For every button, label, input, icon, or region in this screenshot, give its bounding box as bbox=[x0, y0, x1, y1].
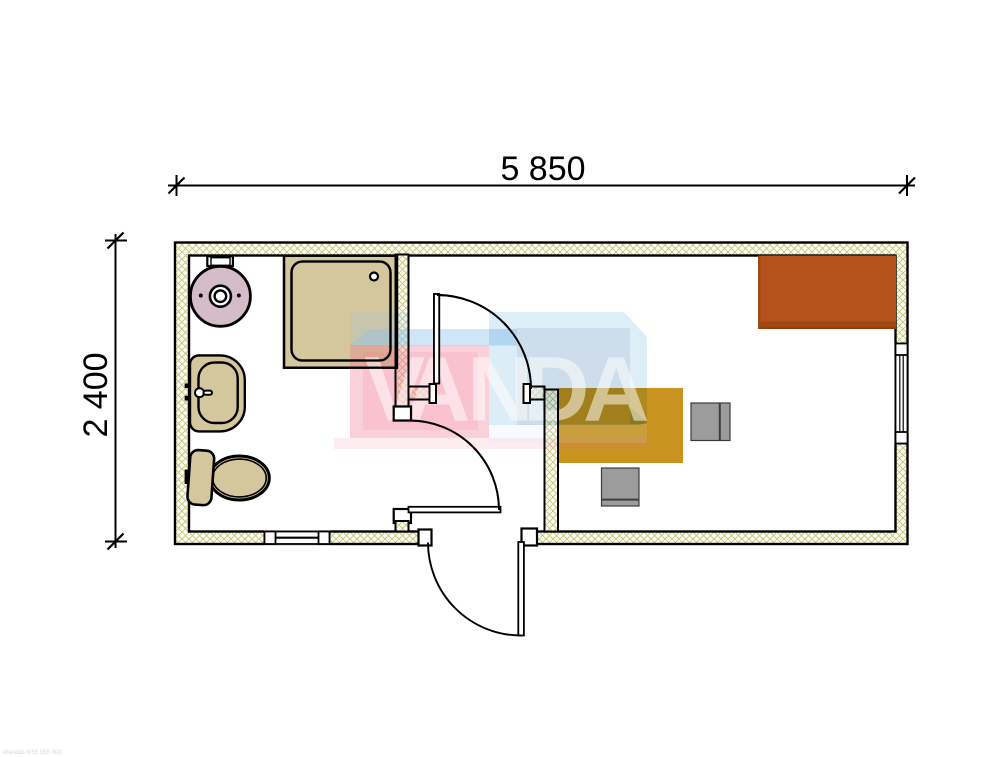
svg-text:Vilandas 8/55 955 003: Vilandas 8/55 955 003 bbox=[2, 750, 62, 756]
svg-text:2 400: 2 400 bbox=[77, 352, 115, 437]
svg-text:VANDA: VANDA bbox=[364, 339, 649, 441]
svg-text:5 850: 5 850 bbox=[500, 150, 585, 188]
